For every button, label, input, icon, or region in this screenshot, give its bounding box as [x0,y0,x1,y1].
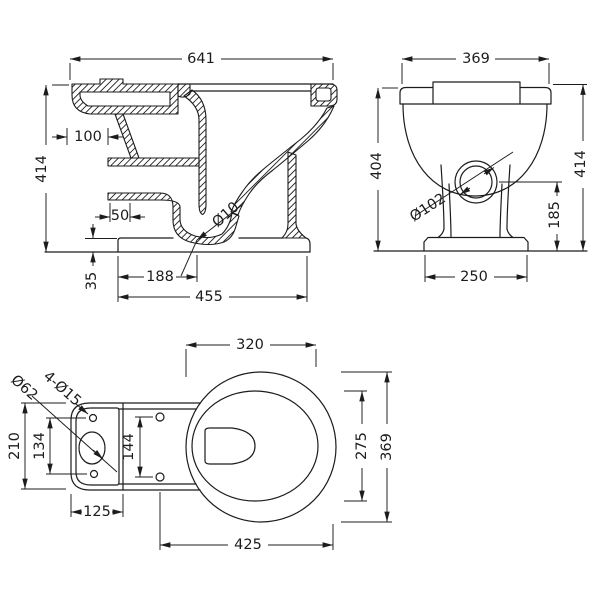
front-pedestal-right-outer [507,165,510,229]
dim-plan-bowl-outer-depth: 369 [379,433,395,461]
plan-inlet-oval [79,432,105,464]
dim-front-outlet-diameter: Ø102 [407,191,449,226]
side-back-wall [115,114,139,158]
leader-arrow [93,450,103,459]
side-plinth-right-edge [306,238,310,252]
side-view-geometry [45,79,337,252]
dim-plan-cistern-pad-width: 125 [83,504,111,520]
dim-front-base-width: 250 [460,269,488,285]
front-pedestal-right-inner [500,184,502,237]
plan-view-geometry [71,372,336,522]
dim-front-outlet-centre-height: 185 [547,201,563,229]
dim-plan-pad-hole-spacing: 134 [32,432,48,460]
dim-side-plinth-height: 35 [84,272,100,290]
front-outlet-inner-circle [460,166,492,198]
dim-side-overall-width: 641 [187,51,215,67]
side-platform-wall [72,79,178,114]
plan-fixing-hole [156,473,164,481]
dim-side-rim-back-depth: 100 [74,129,102,145]
front-plinth [424,238,528,252]
plan-bowl-outer [186,372,336,522]
plan-view: 320 275 369 210 134 [7,337,395,553]
dim-plan-rim-front-width: 320 [236,337,264,353]
front-rim-outline [400,82,551,104]
front-view: 369 404 414 Ø102 185 [369,51,589,285]
dim-side-channel-width: 50 [111,208,129,224]
side-funnel-wall [184,90,206,215]
dim-plan-overall-length: 425 [234,537,262,553]
front-foot-right [507,229,513,238]
dim-front-rim-width: 369 [462,51,490,67]
dim-plan-seat-hole-spacing: 144 [121,433,137,461]
side-front-boss [311,84,337,106]
side-middle-shelf [108,158,199,166]
dim-side-outlet-setout: 188 [146,269,174,285]
side-bowl-front-wall [231,106,334,215]
front-outlet-outer-circle [455,161,497,203]
front-view-dimensions: 369 404 414 Ø102 185 [369,51,589,285]
dim-plan-cistern-pad-depth: 210 [7,432,23,460]
plan-fixing-hole [156,413,164,421]
plan-view-dimensions: 320 275 369 210 134 [7,337,395,553]
dim-front-overall-height: 414 [573,150,589,178]
side-plinth-left-edge [118,238,121,252]
plan-fixing-hole [90,415,97,422]
plan-fixing-hole [91,471,98,478]
technical-drawing: 641 414 100 50 Ø10 [0,0,600,603]
side-pedestal-wall [282,152,306,238]
dim-plan-bowl-inner-depth: 275 [354,432,370,460]
drawing-page: 641 414 100 50 Ø10 [0,0,600,603]
leader-line [181,240,197,276]
side-view: 641 414 100 50 Ø10 [34,51,337,305]
front-foot-left [438,229,444,238]
dim-side-overall-height: 414 [34,155,50,183]
dim-front-height-to-rim: 404 [369,152,385,180]
plan-water-spot [205,428,255,464]
dim-side-base-length: 455 [195,289,223,305]
